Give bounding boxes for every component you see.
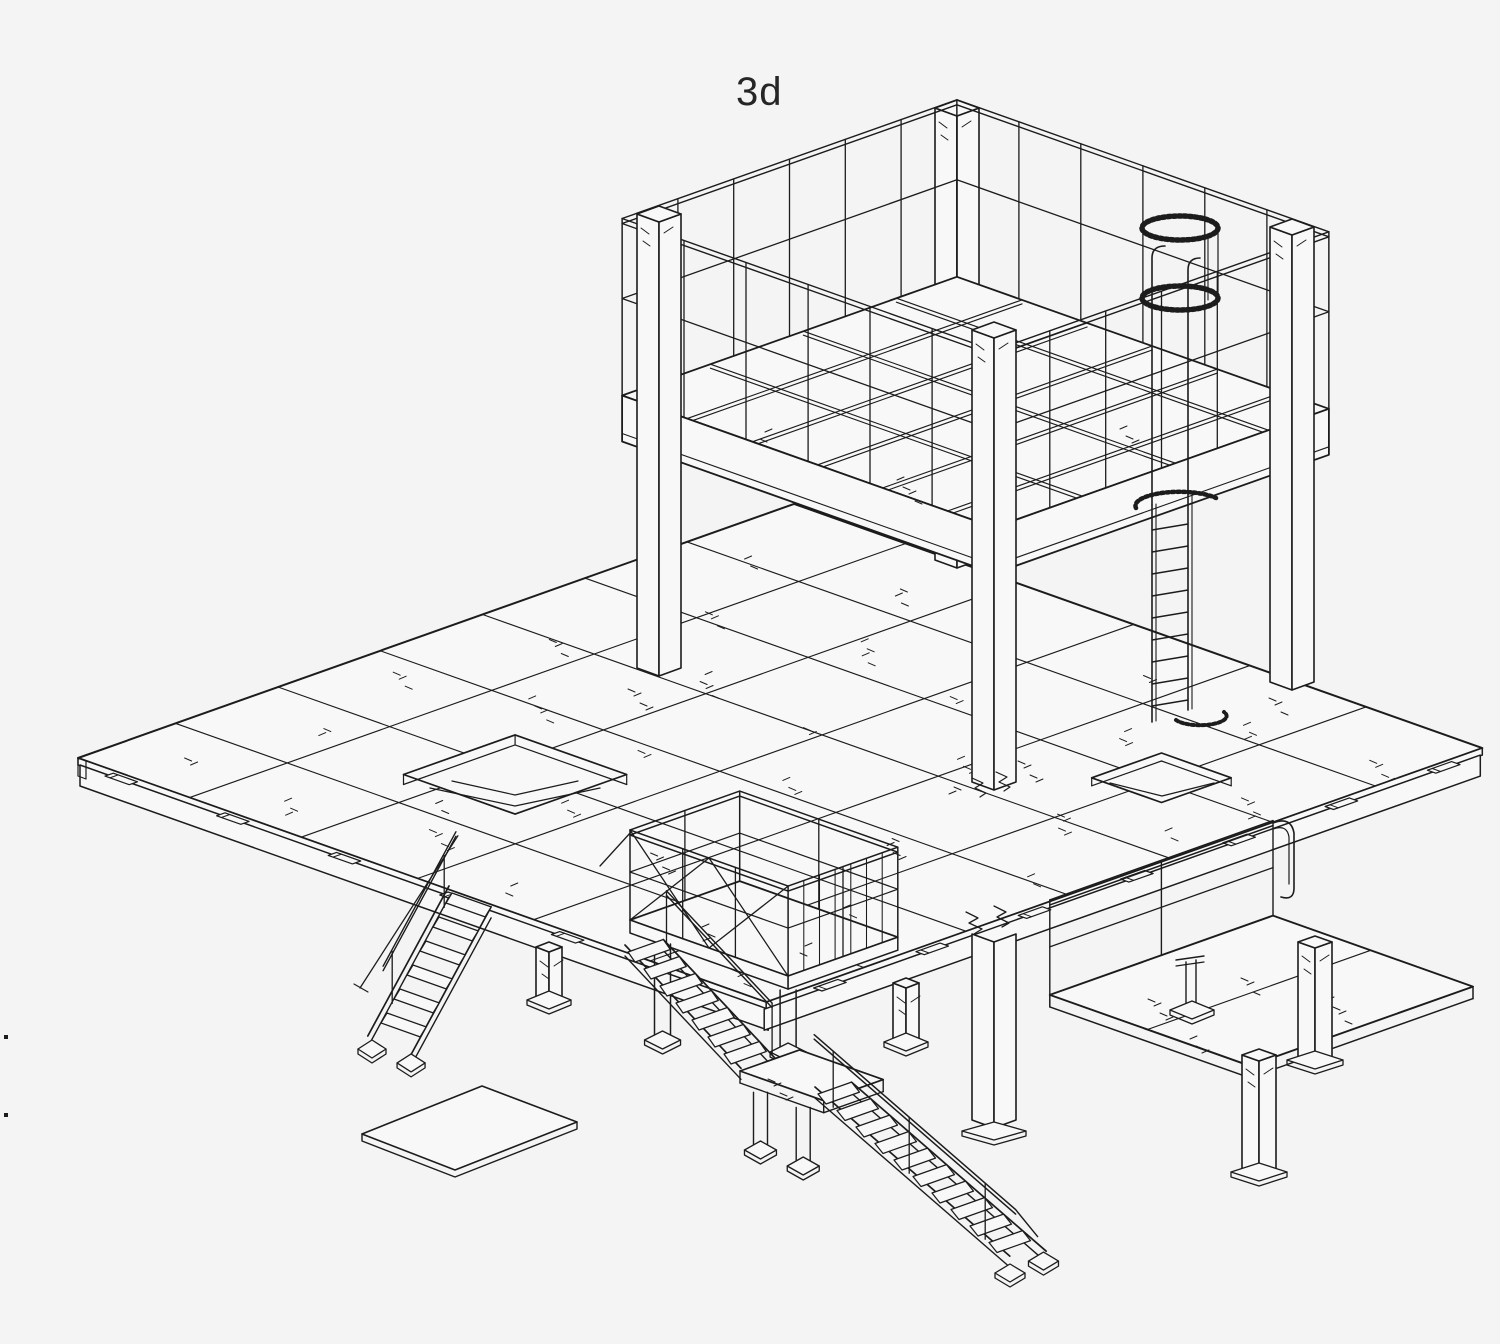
drawing-canvas: 3d: [0, 0, 1500, 1344]
isometric-structure-drawing: [0, 0, 1500, 1344]
stray-dots: [4, 1035, 8, 1117]
right-lower-platform: [1050, 916, 1473, 1186]
loose-floor-panel: [362, 1086, 577, 1177]
